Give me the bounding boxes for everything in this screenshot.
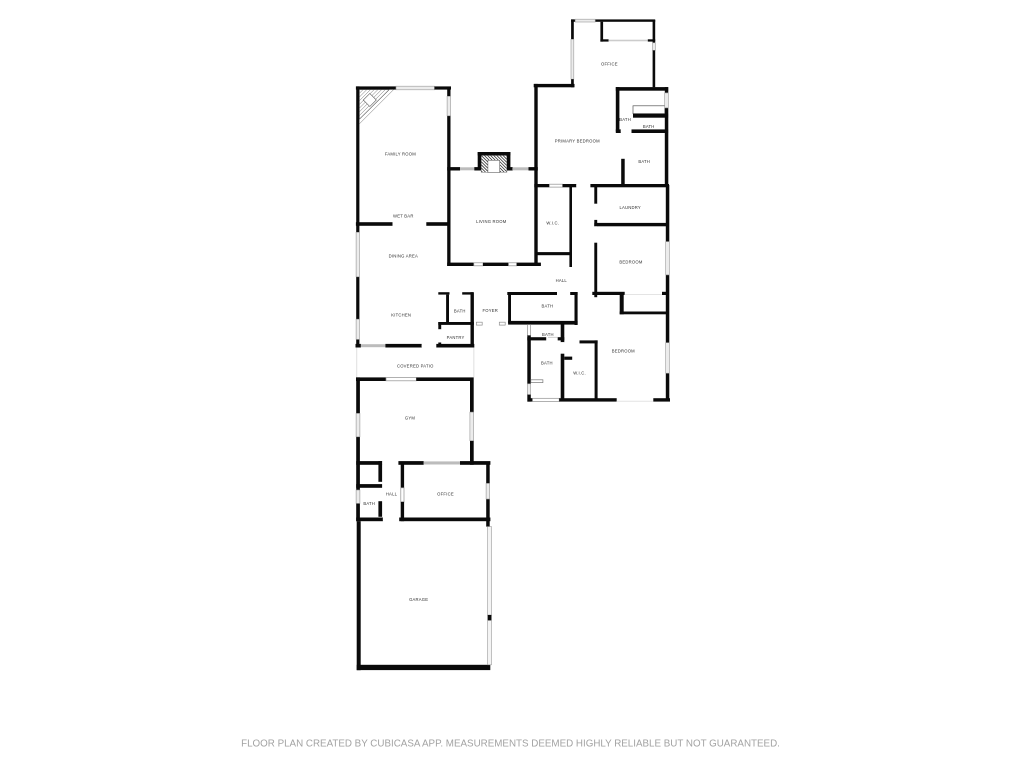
svg-text:HALL: HALL <box>386 492 398 497</box>
svg-text:LIVING ROOM: LIVING ROOM <box>476 219 507 224</box>
svg-text:FAMILY ROOM: FAMILY ROOM <box>385 152 416 157</box>
svg-text:FOYER: FOYER <box>483 308 499 313</box>
svg-text:W.I.C.: W.I.C. <box>546 220 559 225</box>
svg-text:HALL: HALL <box>556 278 568 283</box>
svg-text:BATH: BATH <box>619 117 631 122</box>
svg-text:COVERED PATIO: COVERED PATIO <box>397 363 434 368</box>
svg-text:OFFICE: OFFICE <box>601 61 618 66</box>
svg-text:GYM: GYM <box>405 415 415 420</box>
svg-text:BATH: BATH <box>454 309 466 314</box>
svg-text:WET BAR: WET BAR <box>393 213 414 218</box>
svg-text:W.I.C.: W.I.C. <box>573 371 586 376</box>
svg-text:LAUNDRY: LAUNDRY <box>619 205 640 210</box>
svg-text:BATH: BATH <box>541 361 553 366</box>
svg-text:BATH: BATH <box>542 332 554 337</box>
svg-text:BATH: BATH <box>643 124 655 129</box>
svg-text:BEDROOM: BEDROOM <box>612 349 635 354</box>
svg-text:PANTRY: PANTRY <box>447 335 465 340</box>
svg-text:GARAGE: GARAGE <box>409 597 428 602</box>
svg-text:BEDROOM: BEDROOM <box>619 260 642 265</box>
svg-text:OFFICE: OFFICE <box>437 492 454 497</box>
svg-text:PRIMARY BEDROOM: PRIMARY BEDROOM <box>555 139 600 144</box>
svg-text:FLOOR PLAN CREATED BY CUBICASA: FLOOR PLAN CREATED BY CUBICASA APP. MEAS… <box>241 739 780 750</box>
svg-text:BATH: BATH <box>542 304 554 309</box>
svg-text:KITCHEN: KITCHEN <box>391 312 411 317</box>
svg-text:BATH: BATH <box>363 501 375 506</box>
svg-text:BATH: BATH <box>638 159 650 164</box>
svg-text:DINING AREA: DINING AREA <box>389 254 418 259</box>
